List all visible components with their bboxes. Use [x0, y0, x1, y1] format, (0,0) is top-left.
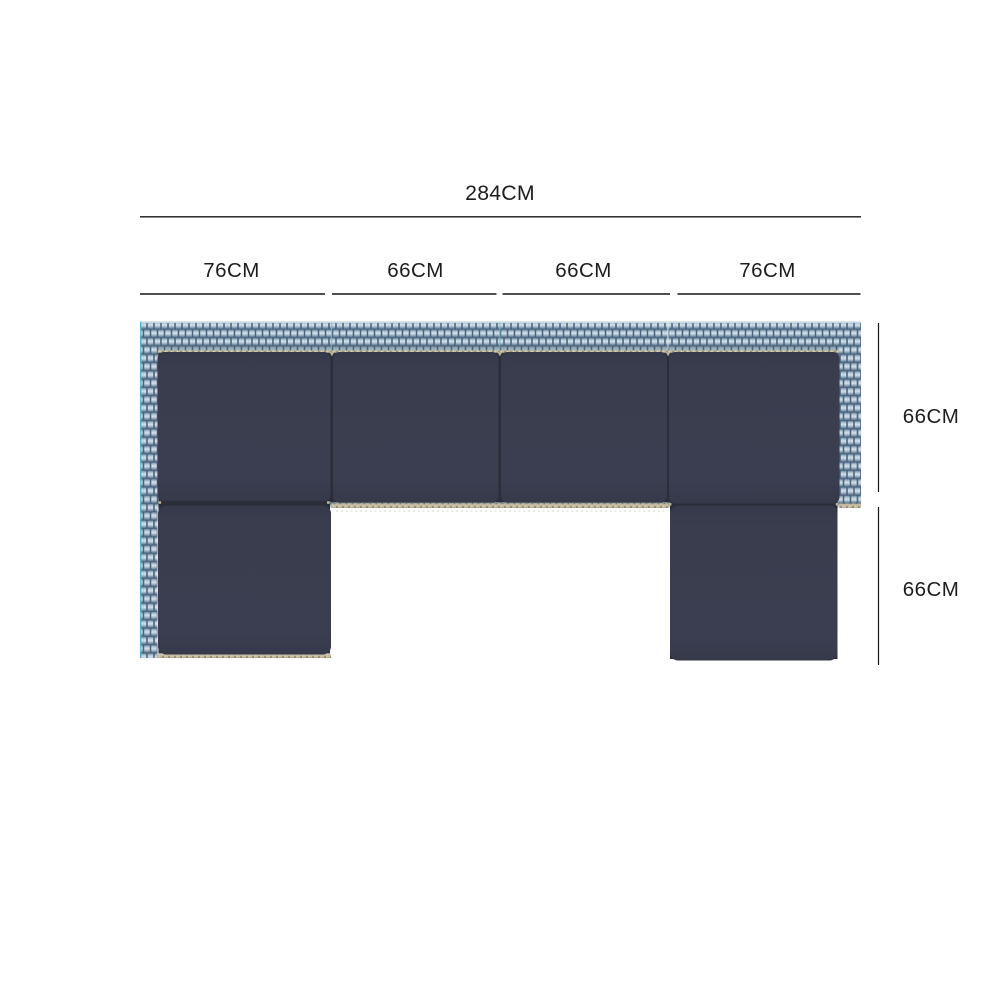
svg-text:66CM: 66CM — [903, 578, 959, 601]
svg-text:284CM: 284CM — [465, 181, 535, 205]
svg-text:66CM: 66CM — [555, 259, 611, 282]
svg-text:76CM: 76CM — [739, 259, 795, 282]
svg-text:66CM: 66CM — [387, 259, 443, 282]
svg-text:76CM: 76CM — [203, 259, 259, 282]
svg-text:66CM: 66CM — [903, 405, 959, 428]
